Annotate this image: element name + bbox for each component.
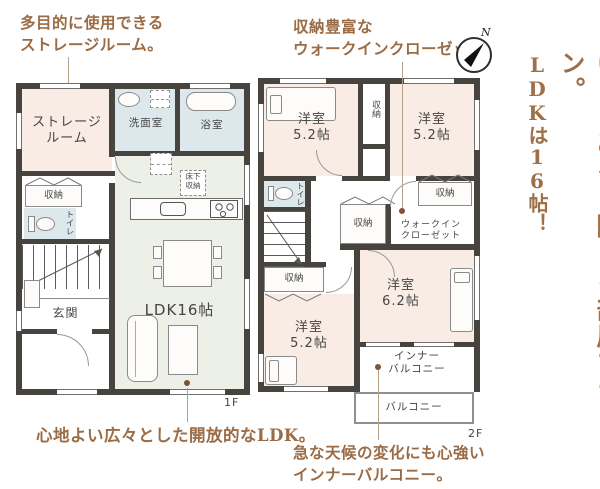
bed <box>265 356 297 385</box>
coffee-table <box>168 325 198 375</box>
annotation-storage-room: 多目的に使用できる ストレージルーム。 <box>20 12 164 56</box>
toilet-1f-label: トイレ <box>63 210 75 238</box>
closet-sw-label: 収納 <box>264 273 324 285</box>
wall <box>342 176 390 181</box>
stairs-2f <box>264 211 305 269</box>
closet-mid-label: 収納 <box>340 218 386 230</box>
balcony-label: バルコニー <box>356 401 472 414</box>
window <box>280 78 326 84</box>
toilet-bowl-icon <box>275 187 293 200</box>
wall <box>109 183 115 389</box>
kitchen-sink-icon <box>160 202 186 216</box>
wall <box>22 171 115 176</box>
door-arc-icon <box>390 181 416 207</box>
window <box>284 386 328 392</box>
leader-dot <box>184 380 190 386</box>
bed <box>450 268 473 332</box>
window <box>16 113 22 149</box>
leader-line <box>402 62 403 210</box>
window <box>40 83 80 89</box>
window <box>414 342 454 347</box>
entrance-door-opening <box>57 389 97 395</box>
wall <box>340 244 474 250</box>
door-arc-icon <box>326 267 352 293</box>
toilet-tank-icon <box>268 186 274 201</box>
leader-line <box>187 388 188 422</box>
window <box>244 279 250 329</box>
window <box>404 78 454 84</box>
shoe-cabinet <box>24 280 40 308</box>
window <box>258 354 264 382</box>
bedroom-se-label: 洋室 6.2帖 <box>360 278 442 311</box>
appliance-space-icon <box>150 153 172 175</box>
window <box>258 104 264 152</box>
toilet-tank-icon <box>28 216 35 232</box>
stairs-direction-icon <box>264 211 305 269</box>
underfloor-storage-label: 床下 収納 <box>180 173 206 190</box>
bedroom-sw-label: 洋室 5.2帖 <box>264 320 354 353</box>
window <box>244 165 250 205</box>
chair <box>153 246 162 259</box>
wall <box>92 329 109 334</box>
annotation-inner-balcony: 急な天候の変化にも心強い インナーバルコニー。 <box>293 442 485 486</box>
closet-1f-label: 収納 <box>25 190 82 202</box>
floor2-label: 2F <box>468 427 483 440</box>
wall <box>22 329 57 334</box>
floor1-label: 1F <box>224 396 239 409</box>
wall <box>358 84 363 176</box>
bathroom-label: 浴室 <box>180 119 244 132</box>
annotation-ldk: 心地よい広々とした開放的なLDK。 <box>36 424 316 447</box>
storage-room-label: ストレージ ルーム <box>22 115 112 148</box>
window <box>366 342 400 347</box>
closet-top-label: 収納 <box>369 100 382 134</box>
dining-table <box>163 240 212 287</box>
compass-north-label: N <box>481 26 491 39</box>
compass-needle-icon <box>458 39 490 71</box>
wall <box>22 239 109 244</box>
bedroom-nw-label: 洋室 5.2帖 <box>266 112 358 145</box>
stove-icon <box>210 200 238 218</box>
wall <box>109 151 244 156</box>
washroom-label: 洗面室 <box>115 117 177 130</box>
chair <box>153 266 162 279</box>
headline-sub: LDKは16帖！ <box>523 53 552 313</box>
window <box>474 256 480 320</box>
leader-line <box>378 370 379 440</box>
washbasin-icon <box>118 92 140 107</box>
sofa <box>127 315 158 382</box>
leader-dot <box>399 208 405 214</box>
door-arc-icon <box>57 334 89 366</box>
folding-door-icon <box>264 293 324 302</box>
floorplan-2f: インナー バルコニー 収納 収納 収納 収納 ウォークイン クローゼット <box>258 78 480 392</box>
window <box>16 311 22 331</box>
compass-icon <box>456 37 492 73</box>
leader-dot <box>375 364 381 370</box>
window <box>474 100 480 150</box>
floorplan-1f: 収納 トイレ 玄関 洗面室 浴室 床下 収納 <box>16 83 250 395</box>
toilet-2f-label: トイレ <box>295 182 306 208</box>
bathtub-icon <box>186 92 236 111</box>
entrance-label: 玄関 <box>22 306 109 321</box>
chair <box>213 246 222 259</box>
headline-main: ゆとりある2階・4部屋プラン。 <box>553 50 600 450</box>
entrance-step-line <box>40 298 110 299</box>
wall <box>358 144 390 149</box>
window <box>170 389 225 395</box>
balcony: バルコニー <box>354 392 474 424</box>
walk-in-closet-label: ウォークイン クローゼット <box>388 220 474 243</box>
window <box>190 83 230 89</box>
floorplan-canvas: 多目的に使用できる ストレージルーム。 収納豊富な ウォークインクローゼット。 … <box>0 0 600 489</box>
chair <box>213 266 222 279</box>
washer-space-icon <box>150 90 170 108</box>
closet-right-label: 収納 <box>418 188 472 200</box>
toilet-bowl-icon <box>36 217 55 231</box>
